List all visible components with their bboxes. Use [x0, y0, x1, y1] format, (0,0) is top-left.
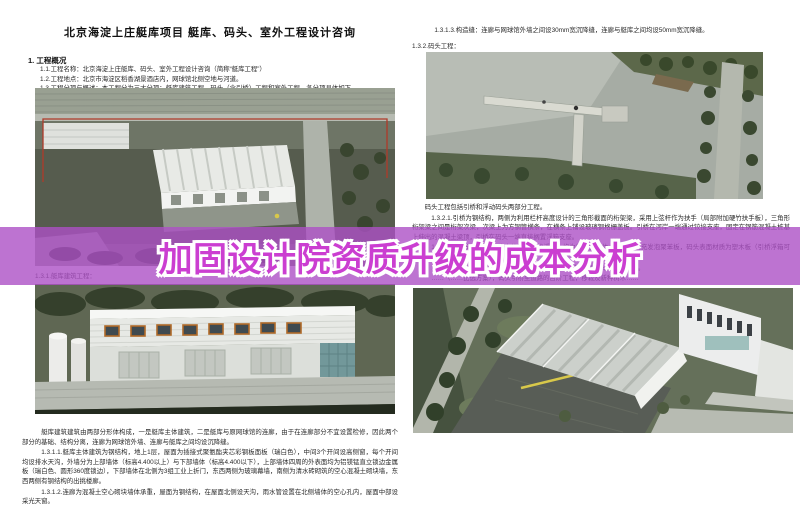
note-line: 1.3.2.码头工程： [412, 42, 790, 52]
note-line: 1.3.1.3.构造缝：连廊与网球馆外墙之间设30mm宽沉降缝，连廊与艇库之间均… [412, 26, 790, 36]
boathouse-description-text: 艇库建筑建筑由两部分形体构成，一是艇库主体建筑，二是艇库与原网球馆的连廊，由于在… [22, 428, 398, 508]
intro-line: 1.2.工程地点：北京市海淀区稻香湖景酒店内，网球馆北侧空地与河道。 [40, 75, 390, 85]
paragraph: 1.3.1.2.连廊为混凝土空心砌块墙体承重，屋面为钢结构，在屋面北侧设天沟，雨… [22, 488, 398, 507]
boathouse-elevation-render-image [35, 284, 395, 414]
paragraph: 1.3.1.1.艇库主体建筑为钢结构，地上1层，屋面为插接式聚氨酯夹芯彩钢板面板… [22, 448, 398, 486]
intro-line: 1.1.工程名称：北京海淀上庄艇库、码头、室外工程设计咨询（简称“艇库工程”） [40, 65, 390, 75]
dock-aerial-render-image [426, 52, 763, 199]
page-title: 北京海淀上庄艇库项目 艇库、码头、室外工程设计咨询 [22, 24, 398, 40]
campus-aerial-render-graphic [413, 288, 793, 433]
promo-overlay-title: 加固设计院资质升级的成本分析 [159, 232, 642, 281]
promo-overlay-banner: 加固设计院资质升级的成本分析 [0, 227, 800, 285]
campus-aerial-render-image [413, 288, 793, 433]
dock-aerial-render-graphic [426, 52, 763, 199]
paragraph: 码头工程包括引桥和浮动码头两部分工程。 [412, 203, 790, 213]
boathouse-elevation-render-graphic [35, 284, 395, 414]
joint-note-lines: 1.3.1.3.构造缝：连廊与网球馆外墙之间设30mm宽沉降缝，连廊与艇库之间均… [412, 26, 790, 51]
paragraph: 艇库建筑建筑由两部分形体构成，一是艇库主体建筑，二是艇库与原网球馆的连廊，由于在… [22, 428, 398, 447]
